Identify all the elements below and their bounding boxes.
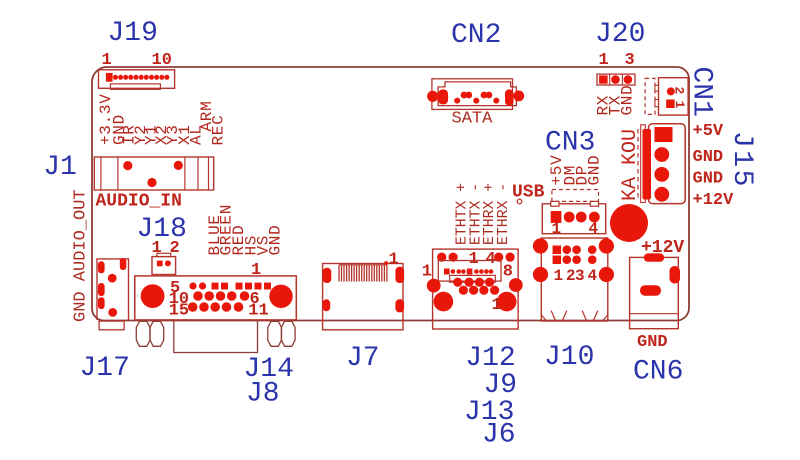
svg-text:1: 1 [102, 51, 112, 70]
svg-text:10: 10 [152, 51, 172, 70]
svg-text:J19: J19 [108, 18, 158, 49]
svg-text:8: 8 [503, 263, 513, 282]
svg-text:1: 1 [599, 51, 609, 70]
svg-text:3: 3 [625, 51, 635, 70]
svg-text:J7: J7 [346, 343, 380, 374]
svg-text:J8: J8 [246, 379, 280, 410]
svg-text:SATA: SATA [452, 110, 494, 129]
svg-text:2: 2 [672, 87, 687, 95]
svg-text:J17: J17 [80, 353, 130, 384]
svg-text:GND: GND [693, 148, 724, 167]
svg-text:1: 1 [469, 250, 479, 269]
svg-text:J15: J15 [726, 131, 757, 189]
svg-text:J6: J6 [482, 420, 516, 451]
svg-text:GND: GND [619, 85, 637, 116]
svg-text:1: 1 [552, 220, 562, 238]
svg-text:USB: USB [512, 183, 545, 203]
svg-text:GND AUDIO_OUT: GND AUDIO_OUT [71, 189, 90, 322]
svg-text:1: 1 [251, 261, 261, 280]
svg-text:1: 1 [492, 296, 502, 315]
svg-text:+5V: +5V [693, 122, 724, 141]
svg-text:1: 1 [422, 263, 432, 282]
svg-text:J20: J20 [595, 19, 645, 50]
svg-text:AUDIO_IN: AUDIO_IN [96, 192, 182, 212]
svg-text:GND: GND [585, 155, 603, 186]
svg-text:1: 1 [672, 101, 687, 109]
svg-text:4: 4 [588, 267, 598, 285]
svg-text:4: 4 [486, 250, 496, 269]
svg-text:CN1: CN1 [686, 67, 717, 117]
svg-text:REC: REC [209, 115, 227, 146]
svg-text:3: 3 [575, 267, 585, 285]
svg-text:GND: GND [266, 225, 284, 256]
svg-text:CN6: CN6 [633, 357, 683, 388]
svg-text:15: 15 [169, 302, 189, 321]
svg-text:J1: J1 [43, 152, 77, 183]
svg-text:CN2: CN2 [451, 20, 501, 51]
svg-text:1: 1 [554, 267, 564, 285]
svg-text:GND: GND [637, 333, 668, 352]
svg-text:+12V: +12V [693, 191, 735, 210]
svg-text:4: 4 [589, 220, 599, 238]
svg-text:J10: J10 [544, 342, 594, 373]
svg-text:GND: GND [693, 170, 724, 189]
svg-text:ETHRX -: ETHRX - [496, 183, 512, 245]
svg-text:KA KOU: KA KOU [619, 129, 642, 201]
svg-text:11: 11 [248, 302, 268, 321]
svg-text:CN3: CN3 [545, 128, 595, 159]
svg-text:1: 1 [389, 251, 399, 270]
